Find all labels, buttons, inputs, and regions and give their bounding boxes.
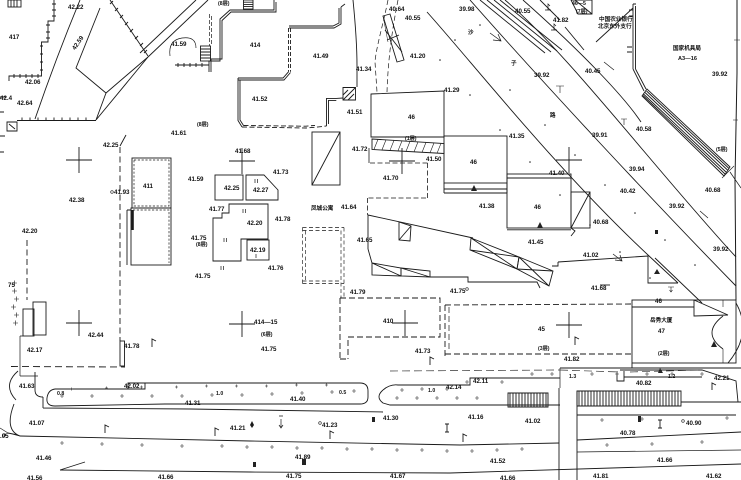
svg-text:41.75: 41.75: [261, 346, 277, 353]
svg-text:42.20: 42.20: [247, 220, 263, 227]
svg-text:41.75: 41.75: [195, 273, 211, 280]
svg-text:41.75: 41.75: [286, 473, 302, 480]
svg-text:41.62: 41.62: [706, 473, 722, 480]
svg-text:417: 417: [9, 34, 20, 41]
svg-text:40.82: 40.82: [636, 380, 652, 387]
svg-text:1.0: 1.0: [428, 388, 435, 394]
svg-text:42.4: 42.4: [0, 95, 13, 102]
svg-text:(8层): (8层): [196, 240, 208, 248]
svg-text:41.51: 41.51: [347, 109, 363, 116]
svg-text:41.75: 41.75: [450, 288, 466, 295]
svg-text:41.21: 41.21: [230, 425, 246, 432]
svg-text:40.68: 40.68: [593, 219, 609, 226]
svg-text:41.73: 41.73: [273, 169, 289, 176]
svg-text:41.79: 41.79: [350, 289, 366, 296]
svg-text:41.73: 41.73: [415, 348, 431, 355]
svg-text:41.59: 41.59: [188, 176, 204, 183]
svg-text:41.82: 41.82: [564, 356, 580, 363]
svg-text:41.34: 41.34: [356, 66, 372, 73]
svg-text:75: 75: [8, 282, 15, 289]
svg-text:1.3: 1.3: [569, 374, 576, 380]
svg-text:41.29: 41.29: [444, 87, 460, 94]
svg-text:41.23: 41.23: [322, 422, 338, 429]
svg-text:410: 410: [383, 318, 394, 325]
svg-text:42.06: 42.06: [25, 79, 41, 86]
svg-text:41.49: 41.49: [313, 53, 329, 60]
svg-text:42.11: 42.11: [473, 378, 489, 385]
svg-text:中国农业银行: 中国农业银行: [599, 15, 633, 23]
svg-text:(5层): (5层): [716, 145, 728, 153]
svg-text:40.78: 40.78: [620, 430, 636, 437]
svg-text:42.02: 42.02: [124, 383, 140, 390]
svg-text:46: 46: [655, 298, 662, 305]
svg-text:1.2: 1.2: [668, 374, 675, 380]
svg-text:39.92: 39.92: [669, 203, 685, 210]
svg-text:41.78: 41.78: [275, 216, 291, 223]
svg-text:国家机具局: 国家机具局: [673, 44, 701, 52]
svg-text:42.25: 42.25: [224, 185, 240, 192]
svg-text:41.70: 41.70: [383, 175, 399, 182]
svg-text:1.0: 1.0: [216, 391, 223, 397]
svg-text:41.40: 41.40: [290, 396, 306, 403]
svg-text:42.25: 42.25: [103, 142, 119, 149]
svg-text:41.16: 41.16: [468, 414, 484, 421]
svg-text:42.44: 42.44: [88, 332, 104, 339]
svg-text:41.31: 41.31: [185, 400, 201, 407]
svg-text:41.65: 41.65: [357, 237, 373, 244]
svg-text:(3层): (3层): [538, 344, 550, 352]
svg-text:41.38: 41.38: [479, 203, 495, 210]
svg-text:40.90: 40.90: [686, 420, 702, 427]
svg-text:41.02: 41.02: [583, 252, 599, 259]
svg-text:40.58: 40.58: [636, 126, 652, 133]
svg-text:41.63: 41.63: [19, 383, 35, 390]
svg-text:41.66: 41.66: [158, 474, 174, 480]
svg-text:41.52: 41.52: [490, 458, 506, 465]
svg-text:414—15: 414—15: [254, 319, 278, 326]
svg-text:42.20: 42.20: [22, 228, 38, 235]
svg-text:40.45: 40.45: [585, 68, 601, 75]
svg-text:41.07: 41.07: [29, 420, 45, 427]
svg-text:41.64: 41.64: [341, 204, 357, 211]
svg-text:41.67: 41.67: [390, 473, 406, 480]
svg-text:41.75: 41.75: [191, 235, 207, 242]
svg-text:(2层): (2层): [658, 349, 670, 357]
svg-text:39.98: 39.98: [459, 6, 475, 13]
svg-text:39.92: 39.92: [534, 72, 550, 79]
svg-text:41.68: 41.68: [591, 285, 607, 292]
svg-text:41.76: 41.76: [268, 265, 284, 272]
svg-text:40.42: 40.42: [620, 188, 636, 195]
svg-text:41.93: 41.93: [114, 189, 130, 196]
svg-text:42.27: 42.27: [253, 187, 269, 194]
svg-text:41.82: 41.82: [553, 17, 569, 24]
svg-text:47: 47: [658, 328, 665, 335]
svg-text:41.61: 41.61: [171, 130, 187, 137]
svg-text:41.30: 41.30: [383, 415, 399, 422]
svg-text:41.72: 41.72: [352, 146, 368, 153]
svg-text:40.55: 40.55: [405, 15, 421, 22]
svg-text:40.68: 40.68: [705, 187, 721, 194]
svg-text:42.14: 42.14: [446, 384, 462, 391]
svg-text:41.02: 41.02: [525, 418, 541, 425]
svg-text:41.89: 41.89: [295, 454, 311, 461]
svg-text:41.77: 41.77: [209, 206, 225, 213]
svg-text:0.8: 0.8: [57, 391, 64, 397]
svg-text:41.52: 41.52: [252, 96, 268, 103]
svg-text:42.19: 42.19: [250, 247, 266, 254]
svg-text:沙: 沙: [468, 29, 474, 36]
svg-text:41.66: 41.66: [500, 475, 516, 480]
svg-text:(1层): (1层): [405, 134, 417, 142]
svg-text:41.59: 41.59: [171, 41, 187, 48]
svg-text:40.64: 40.64: [389, 6, 405, 13]
svg-text:411: 411: [143, 183, 154, 190]
svg-text:42.64: 42.64: [17, 100, 33, 107]
svg-text:岳秀大厦: 岳秀大厦: [650, 316, 673, 324]
svg-text:39.94: 39.94: [629, 166, 645, 173]
svg-text:46: 46: [408, 114, 415, 121]
svg-text:40.55: 40.55: [515, 8, 531, 15]
svg-text:41.66: 41.66: [657, 457, 673, 464]
svg-text:0.5: 0.5: [339, 390, 346, 396]
svg-text:39.92: 39.92: [713, 246, 729, 253]
svg-text:46—5: 46—5: [572, 1, 586, 7]
svg-text:39.91: 39.91: [592, 132, 608, 139]
svg-text:(6层): (6层): [261, 330, 273, 338]
svg-text:42.22: 42.22: [68, 4, 84, 11]
svg-text:子: 子: [511, 60, 517, 67]
svg-text:北京东外支行: 北京东外支行: [598, 22, 632, 30]
svg-text:45: 45: [538, 326, 545, 333]
svg-text:41.68: 41.68: [235, 148, 251, 155]
svg-text:42.21: 42.21: [714, 375, 730, 382]
svg-text:路: 路: [550, 111, 556, 119]
svg-text:42.17: 42.17: [27, 347, 43, 354]
svg-text:A3—16: A3—16: [678, 56, 697, 62]
svg-text:41.40: 41.40: [549, 170, 565, 177]
svg-text:39.92: 39.92: [712, 71, 728, 78]
svg-text:41.78: 41.78: [124, 343, 140, 350]
svg-text:凤城公寓: 凤城公寓: [311, 204, 334, 212]
svg-text:46: 46: [470, 159, 477, 166]
svg-text:41.45: 41.45: [528, 239, 544, 246]
svg-text:41.46: 41.46: [36, 455, 52, 462]
svg-text:.05: .05: [0, 433, 9, 440]
svg-text:41.56: 41.56: [27, 475, 43, 480]
svg-text:42.38: 42.38: [69, 197, 85, 204]
svg-text:(8层): (8层): [218, 0, 230, 7]
svg-text:41.35: 41.35: [509, 133, 525, 140]
svg-text:(8层): (8层): [197, 120, 209, 128]
svg-text:46: 46: [534, 204, 541, 211]
svg-text:41.81: 41.81: [593, 473, 609, 480]
svg-text:414: 414: [250, 42, 261, 49]
svg-text:41.50: 41.50: [426, 156, 442, 163]
svg-text:(7层): (7层): [576, 7, 588, 15]
svg-text:41.20: 41.20: [410, 53, 426, 60]
